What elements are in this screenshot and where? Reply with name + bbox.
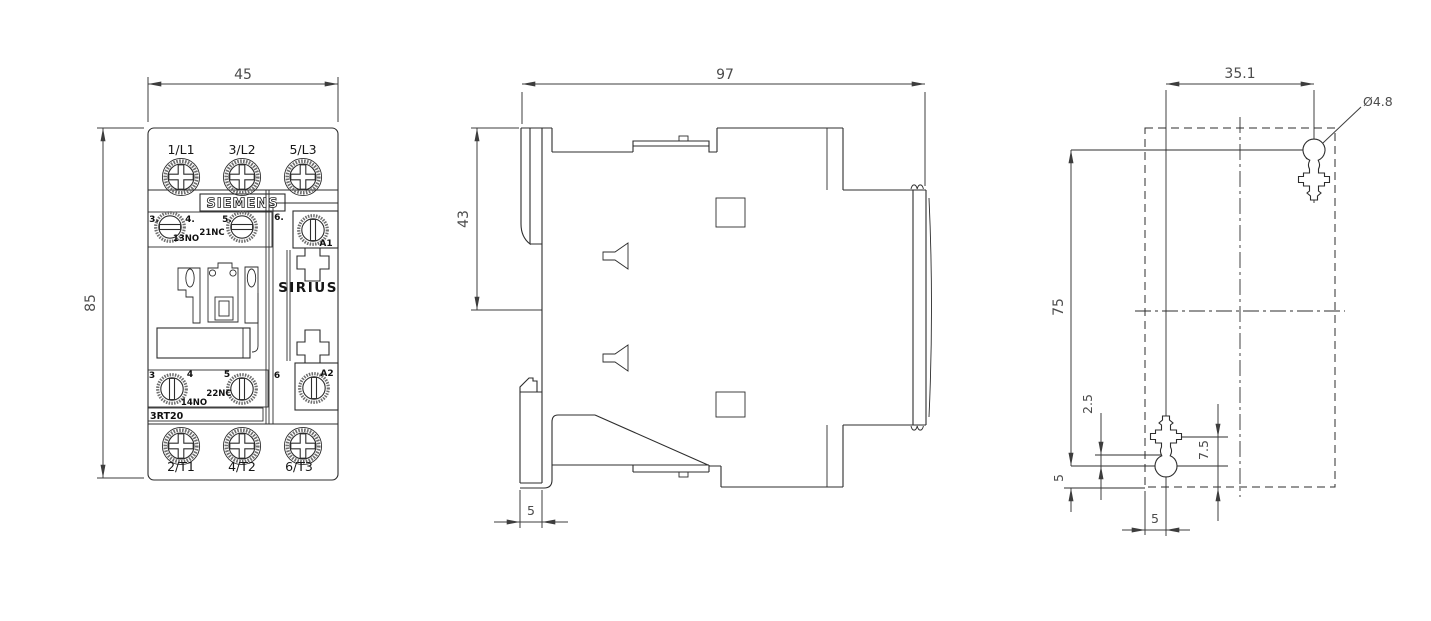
front-height-dimension: 85: [83, 128, 144, 478]
aux-upper-21NC: 21NC: [199, 228, 224, 238]
front-mechanism-detail: [157, 263, 258, 358]
dim-side-upper: 43: [456, 210, 472, 228]
aux-lower-4: 4: [187, 370, 193, 380]
side-foot-dimension: 5: [494, 490, 568, 528]
side-profile: [520, 128, 932, 488]
model-label: 3RT20: [150, 411, 184, 422]
dimension-drawing: 45 85: [0, 0, 1431, 621]
aux-upper-3: 3.: [149, 215, 159, 225]
plan-height-dimension: 75: [1051, 150, 1071, 466]
mounting-keyhole-bottom: [1151, 416, 1182, 477]
dim-side-depth: 97: [716, 67, 734, 83]
aux-upper-6: 6.: [274, 213, 284, 223]
dim-plan-offset-a: 2.5: [1080, 394, 1095, 414]
dim-front-width: 45: [234, 67, 252, 83]
dim-plan-height: 75: [1051, 298, 1067, 316]
side-cutout-upper: [716, 198, 745, 227]
side-depth-dimension: 97: [522, 67, 925, 186]
terminal-1L1-label: 1/L1: [167, 142, 194, 157]
screw-aux-21: [228, 213, 257, 242]
label-field: [157, 328, 250, 358]
aux-lower-14NO: 14NO: [181, 398, 207, 408]
plan-offset-a-dimension: 2.5: [1080, 394, 1101, 500]
drill-plan-view: 35.1 Ø4.8 75 5 2.5 7.5: [1051, 66, 1393, 536]
dim-plan-edge-left: 5: [1051, 474, 1066, 482]
terminal-6T3-label: 6/T3: [285, 459, 313, 474]
aux-upper-13NO: 13NO: [173, 234, 199, 244]
side-cutout-lower: [716, 392, 745, 417]
plan-spacing-dimension: 35.1: [1166, 66, 1314, 84]
plan-edge-left-dimension: 5: [1051, 474, 1071, 512]
terminal-3L2-label: 3/L2: [228, 142, 255, 157]
screw-1L1: [162, 158, 199, 195]
terminal-5L3-label: 5/L3: [289, 142, 316, 157]
dim-front-height: 85: [83, 294, 99, 312]
series-label: SIRIUS: [278, 280, 338, 296]
dim-side-foot: 5: [527, 503, 535, 518]
aux-lower-22NC: 22NC: [206, 389, 231, 399]
plan-offset-b-dimension: 7.5: [1196, 404, 1218, 521]
coil-a1-label: A1: [319, 239, 332, 249]
terminal-4T2-label: 4/T2: [228, 459, 256, 474]
dim-plan-edge-bottom: 5: [1151, 511, 1159, 526]
plan-edge-bottom-dimension: 5: [1122, 491, 1190, 535]
dim-plan-spacing: 35.1: [1224, 66, 1255, 82]
screw-3L2: [223, 158, 260, 195]
aux-upper-4: 4.: [185, 215, 195, 225]
aux-lower-3: 3: [149, 371, 155, 381]
aux-lower-6: 6: [274, 371, 280, 381]
screw-5L3: [284, 158, 321, 195]
aux-lower-5: 5: [224, 370, 230, 380]
front-width-dimension: 45: [148, 67, 338, 122]
side-upper-dimension: 43: [456, 128, 542, 310]
mounting-keyhole-top: [1299, 139, 1330, 200]
brand-logo: SIEMENS: [206, 197, 278, 212]
dim-hole-diameter: Ø4.8: [1363, 94, 1393, 109]
screw-aux-22: [228, 375, 257, 404]
aux-upper-5: 5.: [222, 215, 232, 225]
side-view: 97 43 5: [456, 67, 932, 528]
drawing-canvas: 45 85: [0, 0, 1431, 621]
coil-tab-upper: [297, 248, 329, 281]
front-view: 45 85: [83, 67, 338, 480]
dim-plan-offset-b: 7.5: [1196, 440, 1211, 460]
coil-tab-lower: [297, 330, 329, 363]
terminal-2T1-label: 2/T1: [167, 459, 195, 474]
coil-a2-label: A2: [320, 369, 333, 379]
